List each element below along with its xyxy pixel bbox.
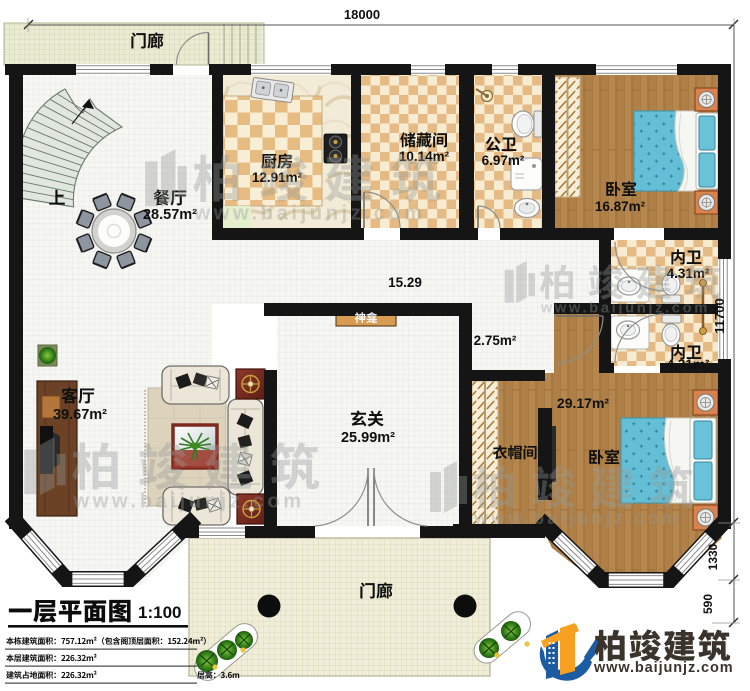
svg-text:4.31m²: 4.31m² xyxy=(667,357,710,372)
svg-text:6.97m²: 6.97m² xyxy=(482,153,525,168)
svg-text:www.baijunjz.com: www.baijunjz.com xyxy=(593,660,734,676)
svg-text:11700: 11700 xyxy=(712,298,727,333)
svg-text:16.87m²: 16.87m² xyxy=(595,199,646,214)
svg-text:590: 590 xyxy=(701,594,715,614)
svg-text:39.67m²: 39.67m² xyxy=(53,407,107,423)
svg-text:25.99m²: 25.99m² xyxy=(341,430,395,446)
svg-text:29.17m²: 29.17m² xyxy=(557,395,609,411)
svg-text:2.75m²: 2.75m² xyxy=(474,333,517,348)
svg-text:28.57m²: 28.57m² xyxy=(143,207,197,223)
svg-text:18000: 18000 xyxy=(344,7,380,22)
svg-text:1:100: 1:100 xyxy=(138,603,181,622)
svg-text:15.29: 15.29 xyxy=(388,275,422,290)
svg-text:1330: 1330 xyxy=(706,543,720,570)
